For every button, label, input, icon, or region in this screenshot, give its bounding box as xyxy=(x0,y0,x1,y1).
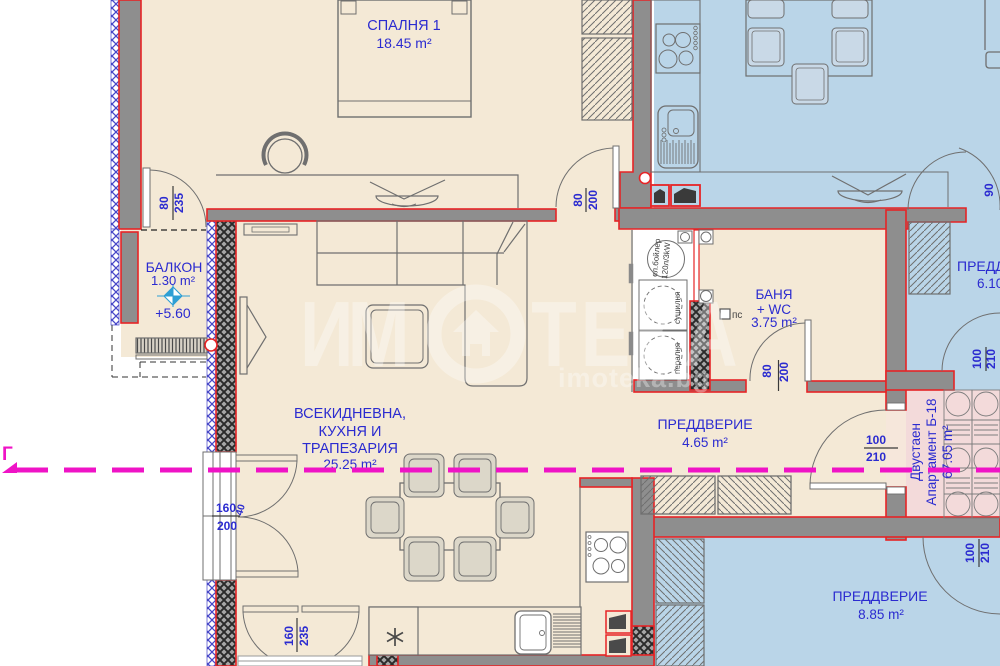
svg-text:+5.60: +5.60 xyxy=(155,305,191,321)
svg-text:200: 200 xyxy=(777,362,791,382)
svg-text:235: 235 xyxy=(172,193,186,213)
svg-text:18.45 m²: 18.45 m² xyxy=(376,35,432,51)
svg-text:КУХНЯ И: КУХНЯ И xyxy=(319,424,382,440)
svg-text:3.75 m²: 3.75 m² xyxy=(751,315,797,330)
svg-text:6.10 m²: 6.10 m² xyxy=(977,276,1000,291)
svg-text:8.85 m²: 8.85 m² xyxy=(858,607,904,622)
svg-text:80: 80 xyxy=(571,193,585,207)
svg-text:210: 210 xyxy=(978,543,992,563)
svg-text:imoteka.bg: imoteka.bg xyxy=(558,363,711,393)
svg-text:80: 80 xyxy=(760,364,774,378)
svg-text:ВСЕКИДНЕВНА,: ВСЕКИДНЕВНА, xyxy=(294,406,406,422)
svg-text:ПРЕДДВЕРИЕ: ПРЕДДВЕРИЕ xyxy=(832,588,927,604)
svg-text:Апартамент Б-18: Апартамент Б-18 xyxy=(924,398,939,505)
svg-text:100: 100 xyxy=(963,543,977,563)
svg-text:ПРЕДДВЕРИЕ: ПРЕДДВЕРИЕ xyxy=(957,258,1000,274)
svg-text:160: 160 xyxy=(216,501,236,515)
svg-text:210: 210 xyxy=(984,349,998,369)
svg-text:БАНЯ: БАНЯ xyxy=(755,287,792,302)
svg-text:210: 210 xyxy=(866,450,886,464)
svg-text:160: 160 xyxy=(282,626,296,646)
svg-text:235: 235 xyxy=(297,626,311,646)
svg-text:100: 100 xyxy=(866,433,886,447)
svg-text:200: 200 xyxy=(586,190,600,210)
svg-text:ПРЕДДВЕРИЕ: ПРЕДДВЕРИЕ xyxy=(657,416,752,432)
svg-text:80: 80 xyxy=(157,196,171,210)
svg-text:СПАЛНЯ 1: СПАЛНЯ 1 xyxy=(367,18,440,34)
svg-text:Г: Г xyxy=(2,444,13,465)
svg-text:ИМ: ИМ xyxy=(300,282,410,386)
svg-text:200: 200 xyxy=(217,519,237,533)
svg-text:ТРАПЕЗАРИЯ: ТРАПЕЗАРИЯ xyxy=(302,441,398,457)
svg-text:90: 90 xyxy=(982,183,996,197)
svg-text:4.65 m²: 4.65 m² xyxy=(682,435,728,450)
svg-text:100: 100 xyxy=(970,349,984,369)
